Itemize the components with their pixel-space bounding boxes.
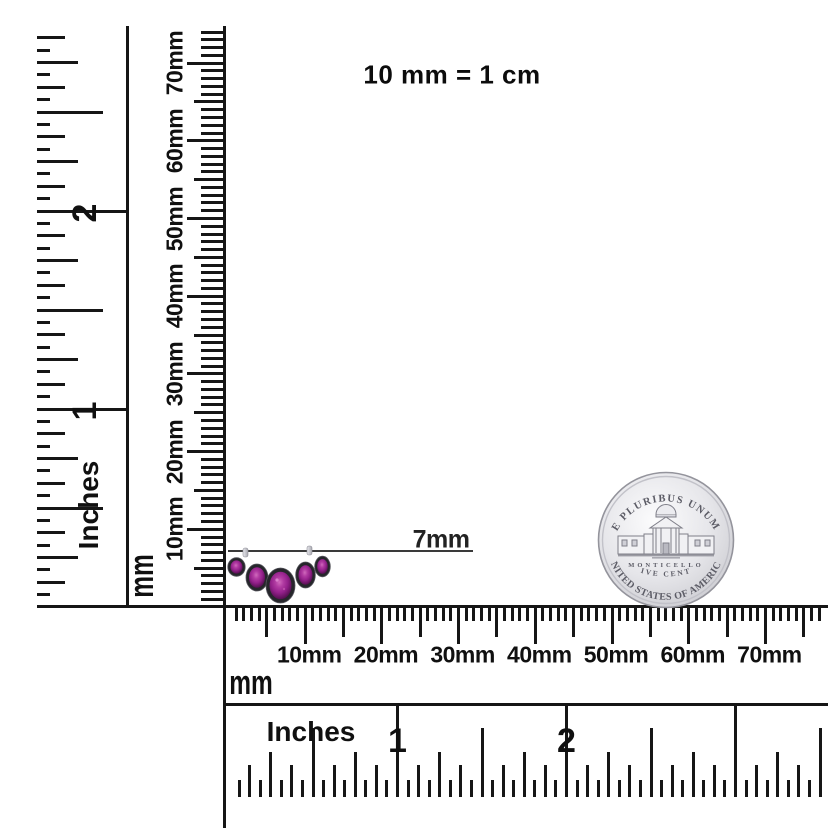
ruler-tick — [681, 780, 684, 797]
coin-building-label: MONTICELLO — [628, 562, 704, 569]
ruler-tick — [544, 765, 547, 797]
ruler-tick — [201, 520, 224, 523]
ruler-tick — [607, 752, 610, 797]
ruler-tick — [795, 607, 798, 621]
ruler-tick — [810, 607, 813, 621]
ruler-tick — [201, 473, 224, 476]
ruler-tick — [37, 544, 50, 547]
ruler-tick — [201, 116, 224, 119]
ruler-tick — [692, 752, 695, 797]
ruler-tick — [755, 765, 758, 797]
ruler-tick — [808, 780, 811, 797]
ruler-tick — [380, 607, 383, 644]
ruler-tick — [201, 310, 224, 313]
ruler-tick — [37, 234, 65, 237]
product-scale-image: 10mm20mm30mm40mm50mm60mm70mm10mm20mm30mm… — [0, 0, 828, 828]
ruler-tick — [481, 728, 484, 797]
ruler-tick — [749, 607, 752, 621]
ruler-tick — [37, 73, 50, 76]
ruler-tick — [779, 607, 782, 621]
ruler-tick — [333, 765, 336, 797]
ruler-tick — [201, 170, 224, 173]
ruler-tick — [37, 568, 50, 571]
ruler-tick — [580, 607, 583, 621]
ruler-tick — [438, 752, 441, 797]
vertical-mm-ruler-label: 60mm — [164, 109, 187, 173]
ruler-tick — [201, 271, 224, 274]
ruler-tick — [37, 86, 65, 89]
ruler-tick — [201, 365, 224, 368]
ruler-tick — [201, 287, 224, 290]
ruler-tick — [457, 607, 460, 644]
ruler-tick — [495, 607, 498, 637]
ruler-tick — [37, 309, 103, 312]
ruler-tick — [201, 559, 224, 562]
ruler-tick — [37, 172, 50, 175]
ruler-tick — [194, 489, 224, 492]
ruler-tick — [201, 458, 224, 461]
ruler-tick — [417, 765, 420, 797]
ruler-tick — [201, 108, 224, 111]
left-inch-ruler-number: 2 — [68, 204, 102, 223]
ruler-tick — [238, 780, 241, 797]
ruler-tick — [187, 295, 224, 298]
ruler-tick — [37, 296, 50, 299]
ruler-tick — [37, 123, 50, 126]
ruler-tick — [201, 77, 224, 80]
ruler-tick — [660, 780, 663, 797]
ruler-tick — [541, 607, 544, 621]
ruler-tick — [787, 780, 790, 797]
ruler-tick — [201, 46, 224, 49]
ruler-tick — [187, 139, 224, 142]
ruler-tick — [37, 247, 50, 250]
ruler-tick — [201, 543, 224, 546]
ruler-tick — [611, 607, 614, 644]
ruler-tick — [187, 450, 224, 453]
ruler-tick — [350, 607, 353, 621]
ruler-tick — [533, 780, 536, 797]
ruler-tick — [37, 185, 65, 188]
ruler-tick — [327, 607, 330, 621]
ruler-tick — [411, 607, 414, 621]
bottom-inch-ruler-number: 1 — [388, 724, 407, 758]
ruler-tick — [586, 765, 589, 797]
ruler-tick — [37, 581, 65, 584]
vertical-mm-ruler-label: 30mm — [164, 342, 187, 406]
bottom-mm-ruler-unit-label: mm — [229, 666, 273, 700]
ruler-tick — [491, 780, 494, 797]
ruler-tick — [250, 607, 253, 621]
ruler-tick — [37, 222, 50, 225]
ruler-tick — [766, 780, 769, 797]
ruler-tick — [365, 607, 368, 621]
ruler-tick — [37, 494, 50, 497]
ruler-tick — [512, 780, 515, 797]
ruler-tick — [671, 765, 674, 797]
ruler-tick — [201, 38, 224, 41]
ruler-tick — [488, 607, 491, 621]
ruler-tick — [745, 780, 748, 797]
ruler-tick — [434, 607, 437, 621]
ruler-tick — [201, 54, 224, 57]
ruler-tick — [37, 420, 50, 423]
left-inch-ruler-edge-line — [126, 26, 129, 607]
ruler-tick — [756, 607, 759, 621]
ruler-tick — [354, 752, 357, 797]
ruler-tick — [296, 607, 299, 621]
ruler-tick — [587, 607, 590, 621]
gemstone-1 — [228, 558, 245, 577]
nickel-coin: E PLURIBUS UNUM MONTICELLO FIVE CENTS UN… — [596, 470, 736, 610]
ruler-tick — [37, 259, 78, 262]
ruler-tick — [37, 445, 50, 448]
ruler-tick — [201, 582, 224, 585]
ruler-tick — [322, 780, 325, 797]
ruler-tick — [201, 357, 224, 360]
ruler-tick — [797, 765, 800, 797]
ruler-tick — [419, 607, 422, 637]
bottom-mm-ruler-label: 60mm — [660, 644, 724, 667]
ruler-tick — [554, 780, 557, 797]
ruler-tick — [194, 100, 224, 103]
ruler-tick — [37, 358, 78, 361]
ruler-tick — [37, 519, 50, 522]
ruler-tick — [319, 607, 322, 621]
ruler-tick — [37, 98, 50, 101]
ruler-tick — [465, 607, 468, 621]
conversion-note: 10 mm = 1 cm — [363, 60, 540, 91]
ruler-tick — [37, 160, 78, 163]
ruler-tick — [301, 780, 304, 797]
ruler-tick — [259, 780, 262, 797]
ruler-tick — [442, 607, 445, 621]
ruler-tick — [201, 512, 224, 515]
ruler-tick — [37, 333, 65, 336]
ruler-tick — [187, 217, 224, 220]
ruler-tick — [37, 370, 50, 373]
ruler-tick — [597, 780, 600, 797]
ruler-tick — [273, 607, 276, 621]
ruler-tick — [258, 607, 261, 621]
ruler-tick — [201, 349, 224, 352]
ruler-tick — [802, 607, 805, 637]
ruler-tick — [388, 607, 391, 621]
ruler-tick — [235, 607, 238, 621]
ruler-tick — [201, 163, 224, 166]
ruler-tick — [37, 432, 65, 435]
ruler-tick — [480, 607, 483, 621]
ruler-tick — [201, 318, 224, 321]
ruler-tick — [449, 780, 452, 797]
ruler-tick — [564, 607, 567, 621]
ruler-tick — [242, 607, 245, 621]
ruler-tick — [503, 607, 506, 621]
ruler-tick — [734, 705, 737, 797]
ruler-tick — [37, 148, 50, 151]
ruler-tick — [549, 607, 552, 621]
ruler-tick — [201, 233, 224, 236]
gemstone-4 — [296, 562, 316, 588]
vertical-mm-ruler-label: 20mm — [164, 419, 187, 483]
ruler-tick — [37, 49, 50, 52]
ruler-tick — [201, 155, 224, 158]
ruler-tick — [373, 607, 376, 621]
ruler-tick — [37, 284, 65, 287]
ruler-tick — [280, 780, 283, 797]
ruler-tick — [334, 607, 337, 621]
ruler-tick — [502, 765, 505, 797]
ruler-tick — [201, 248, 224, 251]
ruler-tick — [396, 607, 399, 621]
ruler-tick — [201, 497, 224, 500]
ruler-tick — [201, 574, 224, 577]
ruler-tick — [764, 607, 767, 644]
ruler-tick — [428, 780, 431, 797]
ruler-tick — [526, 607, 529, 621]
ruler-tick — [702, 780, 705, 797]
ruler-tick — [201, 427, 224, 430]
ruler-tick — [248, 765, 251, 797]
ruler-tick — [201, 341, 224, 344]
ruler-tick — [37, 383, 65, 386]
gemstone-5 — [315, 556, 331, 577]
gemstone-3-center — [266, 568, 295, 603]
ruler-tick — [311, 607, 314, 621]
bottom-mm-ruler-label: 40mm — [507, 644, 571, 667]
ruler-tick — [194, 178, 224, 181]
ruler-tick — [534, 607, 537, 644]
bottom-mm-ruler-label: 10mm — [277, 644, 341, 667]
ruler-tick — [194, 567, 224, 570]
ruler-tick — [713, 765, 716, 797]
ruler-tick — [201, 504, 224, 507]
ruler-tick — [426, 607, 429, 621]
ruler-tick — [201, 240, 224, 243]
ruler-tick — [201, 466, 224, 469]
ruler-tick — [772, 607, 775, 621]
ruler-tick — [403, 607, 406, 621]
ruler-tick — [187, 528, 224, 531]
ruler-tick — [201, 380, 224, 383]
ruler-tick — [723, 780, 726, 797]
ruler-tick — [572, 607, 575, 637]
ruler-tick — [523, 752, 526, 797]
ruler-tick — [201, 69, 224, 72]
ruler-tick — [776, 752, 779, 797]
ruler-tick — [787, 607, 790, 621]
ruler-tick — [37, 197, 50, 200]
ruler-tick — [628, 765, 631, 797]
ruler-tick — [37, 61, 78, 64]
vertical-mm-ruler-label: 50mm — [164, 186, 187, 250]
ruler-tick — [37, 482, 65, 485]
ruler-tick — [37, 395, 50, 398]
earring-post-right — [307, 546, 312, 555]
ruler-tick — [37, 556, 78, 559]
ruler-tick — [304, 607, 307, 644]
ruler-tick — [357, 607, 360, 621]
ruler-tick — [201, 93, 224, 96]
ruler-tick — [201, 419, 224, 422]
ruler-tick — [201, 279, 224, 282]
ruler-tick — [342, 607, 345, 637]
vertical-mm-ruler-unit-label: mm — [125, 554, 159, 598]
bottom-mm-ruler-label: 70mm — [737, 644, 801, 667]
ruler-tick — [201, 403, 224, 406]
ruler-tick — [385, 780, 388, 797]
ruler-tick — [269, 752, 272, 797]
bottom-mm-ruler-label: 30mm — [430, 644, 494, 667]
ruler-tick — [281, 607, 284, 621]
bottom-inch-ruler-number: 2 — [557, 724, 576, 758]
ruler-tick — [37, 457, 78, 460]
jewelry-item — [222, 544, 338, 608]
ruler-tick — [201, 124, 224, 127]
vertical-mm-ruler-label: 10mm — [164, 497, 187, 561]
ruler-tick — [201, 225, 224, 228]
ruler-tick — [37, 531, 65, 534]
ruler-tick — [364, 780, 367, 797]
ruler-tick — [201, 186, 224, 189]
ruler-tick — [201, 590, 224, 593]
ruler-tick — [290, 765, 293, 797]
ruler-tick — [470, 780, 473, 797]
ruler-tick — [407, 780, 410, 797]
left-inch-ruler-number: 1 — [68, 402, 102, 421]
ruler-tick — [818, 607, 821, 621]
ruler-tick — [201, 481, 224, 484]
ruler-tick — [201, 194, 224, 197]
ruler-tick — [343, 780, 346, 797]
ruler-tick — [37, 593, 50, 596]
ruler-tick — [194, 411, 224, 414]
ruler-tick — [37, 321, 50, 324]
bottom-mm-ruler-label: 50mm — [584, 644, 648, 667]
ruler-tick — [650, 728, 653, 797]
ruler-tick — [576, 780, 579, 797]
ruler-tick — [187, 372, 224, 375]
ruler-tick — [201, 201, 224, 204]
ruler-tick — [201, 85, 224, 88]
vertical-mm-ruler-label: 40mm — [164, 264, 187, 328]
bottom-mm-ruler-label: 20mm — [354, 644, 418, 667]
ruler-tick — [37, 135, 65, 138]
vertical-mm-ruler-label: 70mm — [164, 31, 187, 95]
ruler-tick — [201, 598, 224, 601]
gemstone-2 — [246, 564, 268, 591]
ruler-tick — [201, 264, 224, 267]
ruler-tick — [201, 388, 224, 391]
ruler-tick — [687, 607, 690, 644]
bottom-inch-ruler-unit-label: Inches — [267, 718, 356, 746]
ruler-tick — [194, 256, 224, 259]
ruler-tick — [201, 536, 224, 539]
ruler-tick — [511, 607, 514, 621]
ruler-tick — [518, 607, 521, 621]
measurement-value-label: 7mm — [413, 526, 470, 555]
ruler-tick — [741, 607, 744, 621]
bottom-inch-ruler-edge-line — [223, 703, 828, 706]
ruler-tick — [639, 780, 642, 797]
ruler-tick — [449, 607, 452, 621]
ruler-tick — [819, 728, 822, 797]
ruler-tick — [201, 302, 224, 305]
earring-post-left — [243, 548, 248, 557]
ruler-tick — [37, 111, 103, 114]
ruler-tick — [201, 132, 224, 135]
ruler-tick — [201, 396, 224, 399]
ruler-tick — [194, 334, 224, 337]
ruler-tick — [618, 780, 621, 797]
ruler-tick — [37, 469, 50, 472]
ruler-tick — [201, 435, 224, 438]
ruler-tick — [288, 607, 291, 621]
ruler-tick — [201, 442, 224, 445]
ruler-tick — [187, 62, 224, 65]
ruler-tick — [201, 551, 224, 554]
left-inch-ruler-unit-label: Inches — [75, 461, 103, 550]
ruler-tick — [37, 346, 50, 349]
ruler-tick — [37, 36, 65, 39]
ruler-tick — [201, 209, 224, 212]
ruler-tick — [201, 326, 224, 329]
ruler-tick — [726, 607, 729, 637]
ruler-tick — [37, 271, 50, 274]
ruler-tick — [649, 607, 652, 637]
ruler-tick — [201, 31, 224, 34]
ruler-tick — [201, 147, 224, 150]
ruler-tick — [472, 607, 475, 621]
ruler-tick — [265, 607, 268, 637]
ruler-tick — [459, 765, 462, 797]
ruler-tick — [375, 765, 378, 797]
ruler-tick — [557, 607, 560, 621]
